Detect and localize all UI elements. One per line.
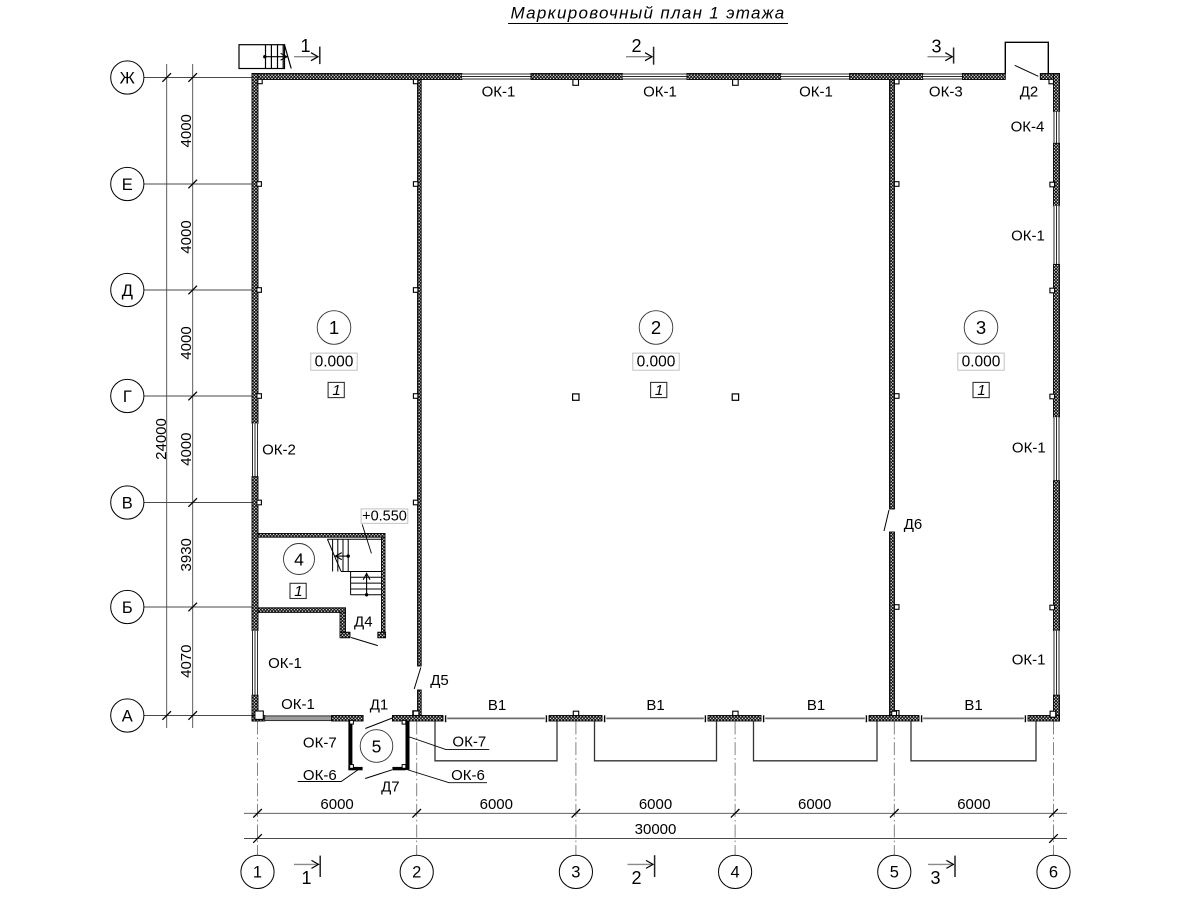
svg-text:4000: 4000 (178, 114, 195, 147)
svg-text:6: 6 (1049, 864, 1058, 882)
svg-text:В1: В1 (807, 697, 825, 714)
svg-text:ОК-6: ОК-6 (451, 767, 485, 784)
svg-text:ОК-4: ОК-4 (1011, 119, 1045, 136)
svg-text:1: 1 (301, 868, 311, 888)
svg-text:5: 5 (372, 736, 382, 756)
svg-text:6000: 6000 (957, 796, 990, 813)
svg-text:Д6: Д6 (904, 516, 923, 533)
svg-text:3: 3 (976, 317, 986, 338)
svg-text:0.000: 0.000 (962, 354, 1001, 371)
svg-text:4: 4 (731, 864, 740, 882)
svg-text:В1: В1 (964, 697, 982, 714)
svg-text:24000: 24000 (153, 418, 170, 460)
svg-text:ОК-1: ОК-1 (281, 696, 315, 713)
svg-text:ОК-7: ОК-7 (303, 735, 337, 752)
svg-text:1: 1 (300, 36, 310, 56)
svg-text:Д4: Д4 (354, 614, 373, 631)
svg-text:4070: 4070 (178, 645, 195, 678)
svg-text:ОК-1: ОК-1 (1012, 440, 1046, 457)
svg-text:4000: 4000 (178, 433, 195, 466)
svg-text:2: 2 (631, 868, 641, 888)
svg-text:+0.550: +0.550 (362, 509, 407, 525)
svg-text:ОК-1: ОК-1 (482, 84, 516, 101)
svg-text:Маркировочный план 1 этажа: Маркировочный план 1 этажа (510, 4, 785, 23)
svg-text:В1: В1 (488, 697, 506, 714)
svg-text:1: 1 (253, 864, 262, 882)
svg-text:30000: 30000 (635, 821, 677, 838)
svg-text:4000: 4000 (178, 326, 195, 359)
svg-text:6000: 6000 (639, 796, 672, 813)
svg-text:Д1: Д1 (370, 697, 389, 714)
svg-text:В: В (122, 494, 133, 512)
svg-text:ОК-3: ОК-3 (929, 84, 963, 101)
svg-text:А: А (122, 707, 133, 725)
svg-text:2: 2 (412, 864, 421, 882)
svg-text:1: 1 (977, 382, 985, 399)
svg-text:Д5: Д5 (430, 672, 449, 689)
svg-text:Д: Д (122, 282, 133, 300)
svg-text:ОК-1: ОК-1 (268, 655, 302, 672)
svg-text:0.000: 0.000 (315, 354, 354, 371)
svg-text:2: 2 (651, 317, 661, 338)
svg-text:Д7: Д7 (381, 779, 400, 796)
svg-text:Е: Е (122, 176, 133, 194)
svg-text:В1: В1 (646, 697, 664, 714)
svg-text:1: 1 (329, 317, 339, 338)
svg-text:3930: 3930 (178, 538, 195, 571)
svg-text:6000: 6000 (320, 796, 353, 813)
svg-text:0.000: 0.000 (637, 354, 676, 371)
svg-text:6000: 6000 (798, 796, 831, 813)
svg-text:ОК-1: ОК-1 (643, 84, 677, 101)
svg-text:1: 1 (655, 382, 663, 399)
svg-text:Ж: Ж (120, 69, 136, 87)
svg-text:ОК-1: ОК-1 (1011, 228, 1045, 245)
svg-text:ОК-7: ОК-7 (452, 734, 486, 751)
svg-text:1: 1 (294, 583, 302, 600)
svg-text:Г: Г (123, 388, 132, 406)
svg-text:6000: 6000 (480, 796, 513, 813)
svg-text:Б: Б (122, 599, 133, 617)
svg-text:3: 3 (931, 36, 941, 56)
svg-text:3: 3 (930, 868, 940, 888)
svg-text:4: 4 (294, 549, 304, 569)
svg-text:3: 3 (571, 864, 580, 882)
svg-text:5: 5 (890, 864, 899, 882)
svg-text:ОК-1: ОК-1 (799, 84, 833, 101)
svg-text:1: 1 (332, 382, 340, 399)
svg-text:ОК-2: ОК-2 (262, 442, 296, 459)
svg-text:ОК-1: ОК-1 (1012, 652, 1046, 669)
svg-text:Д2: Д2 (1020, 84, 1039, 101)
svg-text:2: 2 (631, 36, 641, 56)
svg-text:4000: 4000 (178, 220, 195, 253)
